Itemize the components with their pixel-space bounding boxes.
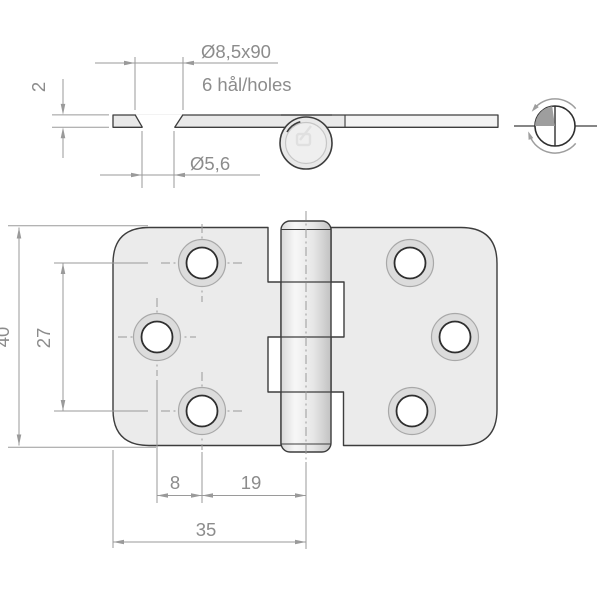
dimension-width-35: 35 bbox=[113, 450, 306, 548]
dim-label-thickness: 2 bbox=[28, 82, 49, 92]
hinge-knuckle-side bbox=[280, 117, 332, 169]
dimension-thickness-2: 2 bbox=[28, 79, 109, 158]
dim-label-offset: 8 bbox=[170, 472, 180, 493]
quadrant-sector bbox=[535, 106, 555, 126]
screw-hole-right-middle bbox=[432, 314, 479, 361]
dim-label-holes-note: 6 hål/holes bbox=[202, 74, 291, 95]
dimension-countersink: Ø8,5x90 6 hål/holes bbox=[95, 41, 291, 110]
dim-label-countersink: Ø8,5x90 bbox=[201, 41, 271, 62]
dim-label-axis: 19 bbox=[241, 472, 262, 493]
technical-drawing-hinge: 2 Ø8,5x90 6 hål/holes Ø5,6 bbox=[0, 0, 600, 600]
screw-hole-right-bottom bbox=[389, 388, 436, 435]
side-view-plate-right-leaf bbox=[346, 116, 497, 127]
screw-hole-right-top bbox=[387, 240, 434, 287]
side-view: 2 Ø8,5x90 6 hål/holes Ø5,6 bbox=[28, 41, 498, 188]
dimension-hole-diameter: Ø5,6 bbox=[100, 131, 260, 188]
pin-axis-end-view bbox=[514, 99, 597, 153]
countersink-profile bbox=[135, 114, 183, 128]
dim-label-hole-diameter: Ø5,6 bbox=[190, 153, 230, 174]
dimension-axis-19: 19 bbox=[202, 472, 306, 498]
dim-label-width: 35 bbox=[196, 519, 217, 540]
drawing-canvas: 2 Ø8,5x90 6 hål/holes Ø5,6 bbox=[0, 0, 600, 600]
dim-label-height: 40 bbox=[0, 327, 13, 348]
dim-label-spacing: 27 bbox=[33, 328, 54, 349]
front-view: 40 27 8 19 bbox=[0, 211, 497, 549]
